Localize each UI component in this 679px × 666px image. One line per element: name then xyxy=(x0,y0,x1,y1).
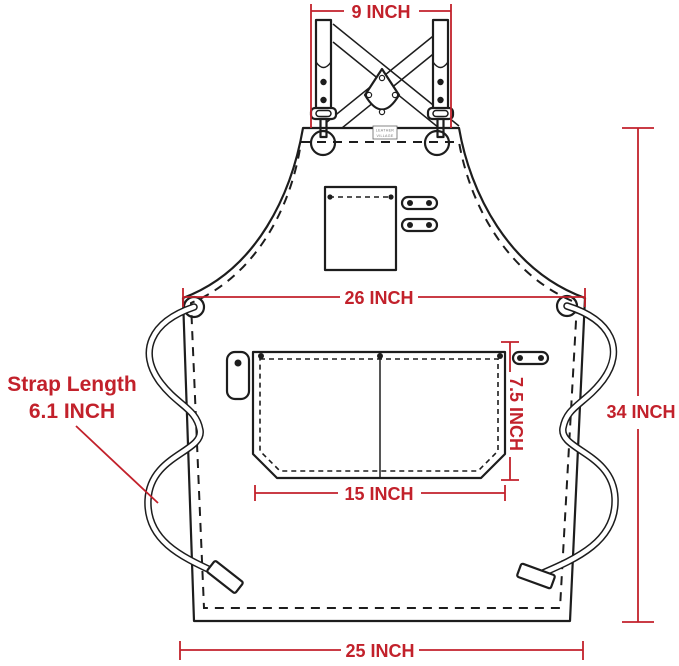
right-buckle xyxy=(428,108,453,119)
rivet-hole xyxy=(379,75,384,80)
right-waist-strap xyxy=(517,306,615,589)
apron-diagram-page: LEATHER VILLAGE xyxy=(0,0,679,666)
top-strap-width-label: 9 INCH xyxy=(351,2,410,22)
apron-diagram: LEATHER VILLAGE xyxy=(0,0,679,666)
dimension-bottom-width: 25 INCH xyxy=(180,641,583,661)
strap-length-value: 6.1 INCH xyxy=(29,400,115,423)
bottom-width-label: 25 INCH xyxy=(345,641,414,661)
left-waist-strap xyxy=(148,307,244,594)
brand-tag-line1: LEATHER xyxy=(376,129,395,133)
side-tool-loop xyxy=(513,352,548,364)
strap-length-leader-line xyxy=(76,426,158,503)
chest-pocket xyxy=(325,187,396,270)
pocket-width-label: 15 INCH xyxy=(344,484,413,504)
rivet-hole xyxy=(379,109,384,114)
hammer-loop xyxy=(227,352,249,399)
rivet-hole xyxy=(392,92,397,97)
diamond-pad xyxy=(365,69,399,115)
dimension-body-height: 34 INCH xyxy=(606,128,675,622)
brand-tag: LEATHER VILLAGE xyxy=(373,126,397,139)
left-strap-tip xyxy=(207,560,244,593)
left-buckle xyxy=(311,108,336,119)
strap-length-label: Strap Length xyxy=(7,373,137,396)
body-height-label: 34 INCH xyxy=(606,402,675,422)
chest-tool-loops xyxy=(402,197,437,231)
cross-strap-assembly xyxy=(311,20,459,137)
rivet-hole xyxy=(366,92,371,97)
dimension-chest-width: 26 INCH xyxy=(183,288,585,308)
dimension-strap-length: Strap Length 6.1 INCH xyxy=(7,373,158,503)
main-pocket xyxy=(253,352,505,478)
chest-width-label: 26 INCH xyxy=(344,288,413,308)
pocket-height-label: 7.5 INCH xyxy=(506,377,526,451)
dimension-pocket-width: 15 INCH xyxy=(255,484,505,504)
brand-tag-line2: VILLAGE xyxy=(376,134,393,138)
left-shoulder-strap xyxy=(311,20,336,137)
